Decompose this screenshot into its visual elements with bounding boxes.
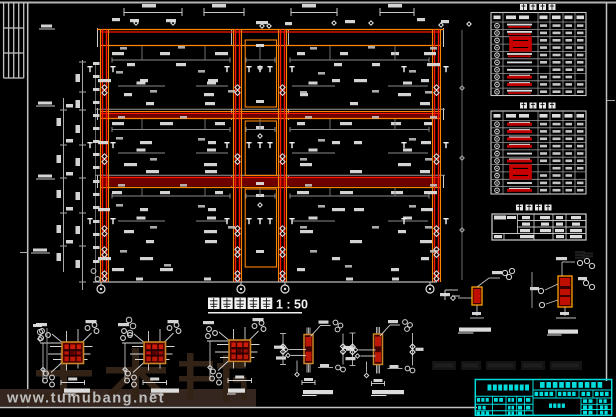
svg-text:www.tumubang.net: www.tumubang.net (6, 391, 165, 407)
svg-text:1 : 50: 1 : 50 (276, 298, 308, 312)
